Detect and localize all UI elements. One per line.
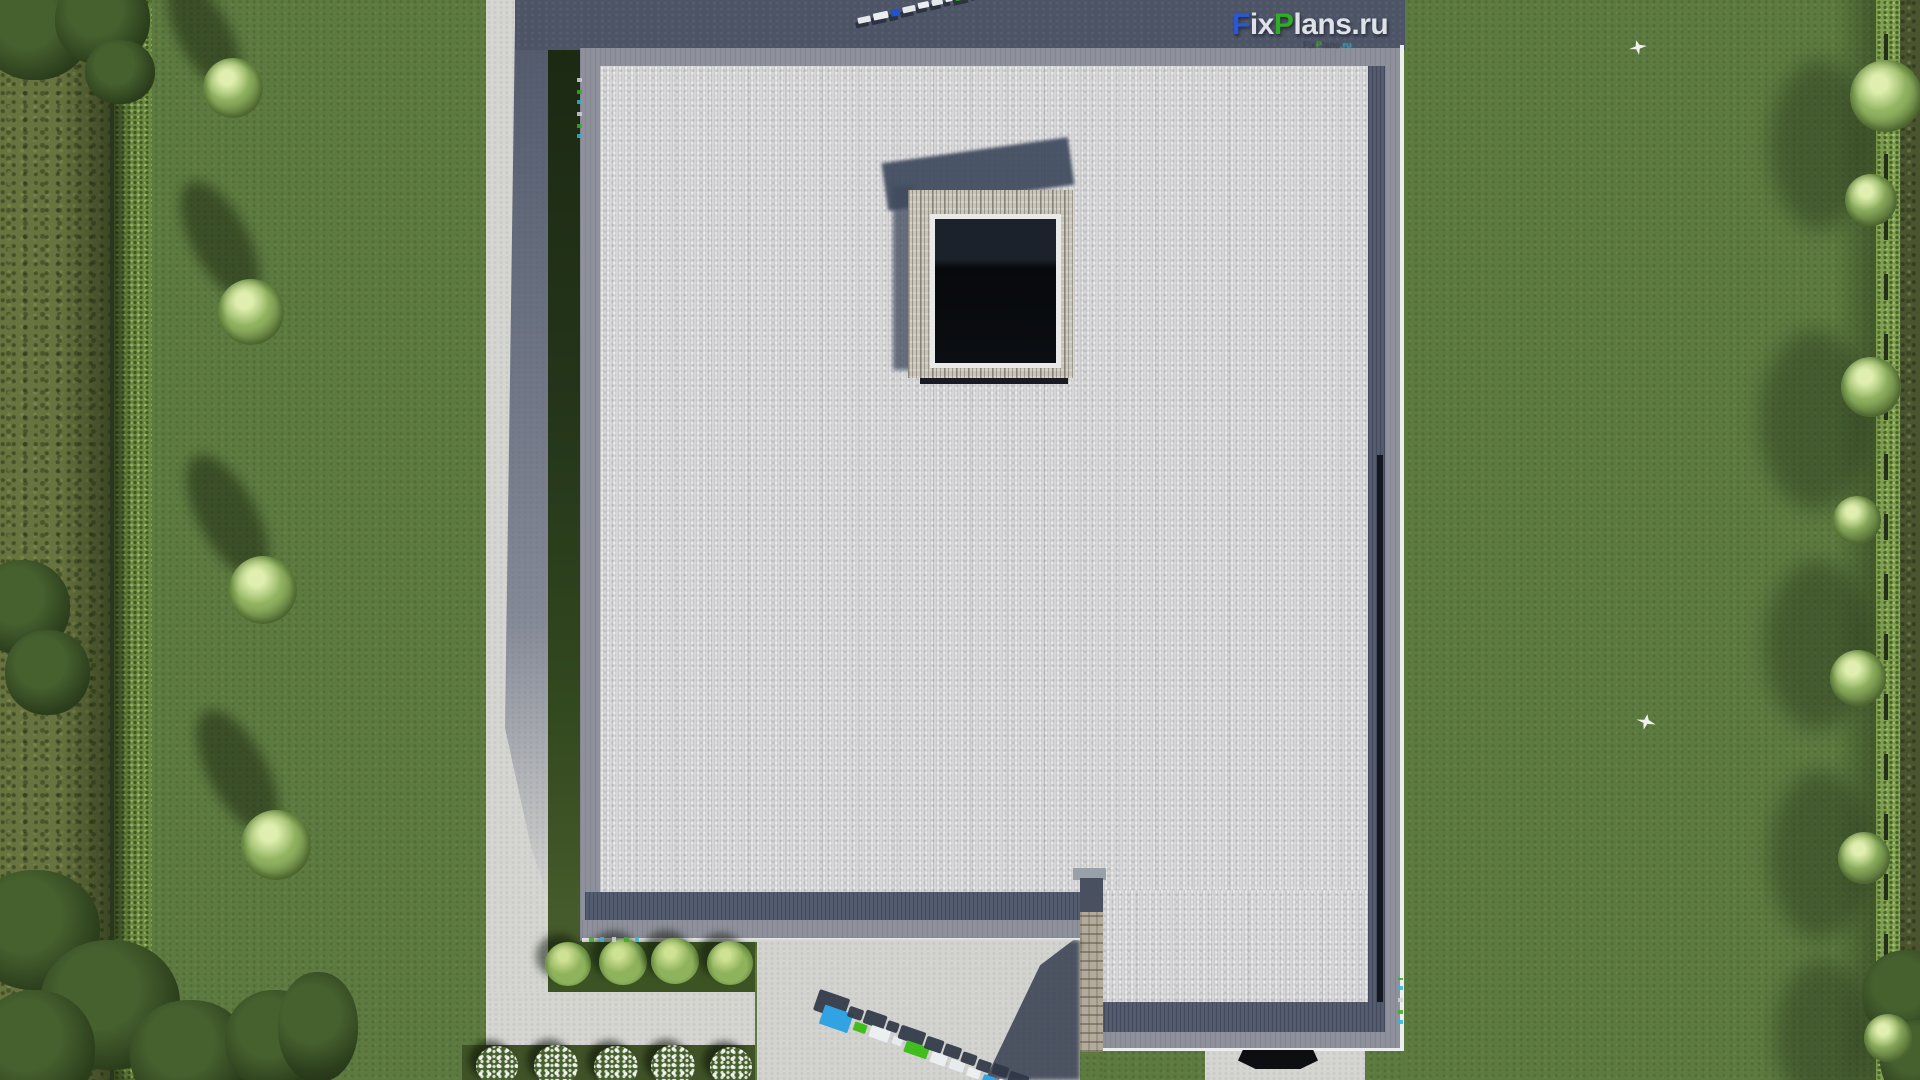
dark-tree bbox=[5, 630, 90, 715]
shaded-grass-strip bbox=[548, 45, 582, 942]
right-hedge bbox=[1876, 0, 1900, 1080]
brand-3d-block bbox=[853, 1021, 868, 1034]
parapet-outer-right bbox=[1385, 48, 1400, 1048]
right-hedge-fence bbox=[1884, 0, 1888, 1080]
parapet-inner-dark-bottom bbox=[585, 892, 1082, 920]
wing-outer-bottom bbox=[1100, 1032, 1400, 1048]
shrub bbox=[651, 938, 699, 984]
edge-watermark-left bbox=[577, 70, 582, 138]
brand-3d-block bbox=[873, 11, 889, 21]
tree bbox=[1838, 832, 1890, 884]
hedge-shadow-blob bbox=[1760, 330, 1870, 510]
brand-letters-lans: lans bbox=[1293, 8, 1351, 41]
shrub bbox=[545, 942, 591, 986]
small-ru: ru bbox=[1343, 40, 1352, 50]
tree bbox=[241, 810, 311, 880]
wing-inner-dark-bottom bbox=[1100, 1002, 1385, 1032]
skylight-glass bbox=[930, 214, 1061, 368]
brand-watermark-small: FixPlans.ru bbox=[1303, 41, 1352, 50]
shrub bbox=[707, 941, 753, 985]
edge-watermark-bottom bbox=[589, 937, 641, 942]
tree bbox=[1864, 1014, 1912, 1062]
cross-path bbox=[487, 992, 755, 1045]
flower-shrub bbox=[476, 1046, 518, 1080]
shrub bbox=[599, 939, 647, 985]
brand-letter-p: P bbox=[1274, 8, 1294, 41]
right-outer-strip bbox=[1900, 0, 1920, 1080]
chimney-dark-face bbox=[1080, 878, 1103, 914]
brand-3d-block bbox=[931, 0, 943, 6]
brand-3d-block bbox=[857, 15, 871, 24]
aerial-site-render: FixPlans.ru FixPlans.ru bbox=[0, 0, 1920, 1080]
tree bbox=[218, 279, 284, 345]
tree bbox=[1833, 496, 1881, 544]
brand-3d-block bbox=[945, 0, 953, 2]
brand-suffix-ru: .ru bbox=[1351, 8, 1388, 41]
roof-edge-joint bbox=[1377, 455, 1383, 1032]
brand-3d-block bbox=[918, 1, 930, 9]
dark-canopy bbox=[1238, 1050, 1318, 1069]
tree bbox=[203, 58, 263, 118]
tree bbox=[1850, 60, 1920, 132]
brand-3d-block bbox=[902, 5, 916, 14]
small-lans: lans bbox=[1322, 40, 1340, 50]
dark-tree bbox=[85, 40, 155, 104]
skylight-base-shadow bbox=[920, 378, 1068, 384]
house-roof-wing-field bbox=[1100, 890, 1368, 1002]
brand-3d-block bbox=[891, 1036, 903, 1047]
flower-shrub bbox=[651, 1045, 695, 1080]
small-ix: ix bbox=[1309, 40, 1317, 50]
flower-shrub bbox=[534, 1045, 578, 1080]
parapet-outer-bottom bbox=[582, 920, 1082, 938]
dark-tree bbox=[278, 972, 358, 1080]
brand-3d-block bbox=[954, 0, 970, 1]
flower-shrub bbox=[594, 1046, 638, 1080]
tree bbox=[1841, 357, 1901, 417]
brand-3d-block bbox=[890, 8, 900, 17]
edge-watermark-right bbox=[1398, 978, 1403, 1024]
brand-3d-block bbox=[868, 1025, 891, 1043]
roof-white-edge-right bbox=[1400, 45, 1404, 1051]
brand-3d-block bbox=[981, 1074, 995, 1080]
flower-shrub bbox=[710, 1047, 752, 1080]
tree bbox=[1845, 174, 1897, 226]
brand-letters-ix: ix bbox=[1250, 8, 1274, 41]
left-hedge bbox=[110, 0, 152, 1080]
brand-watermark: FixPlans.ru bbox=[1232, 10, 1388, 40]
tree bbox=[229, 556, 297, 624]
tree bbox=[1830, 650, 1886, 706]
brand-letter-f: F bbox=[1232, 8, 1250, 41]
chimney-stone bbox=[1080, 912, 1103, 1052]
